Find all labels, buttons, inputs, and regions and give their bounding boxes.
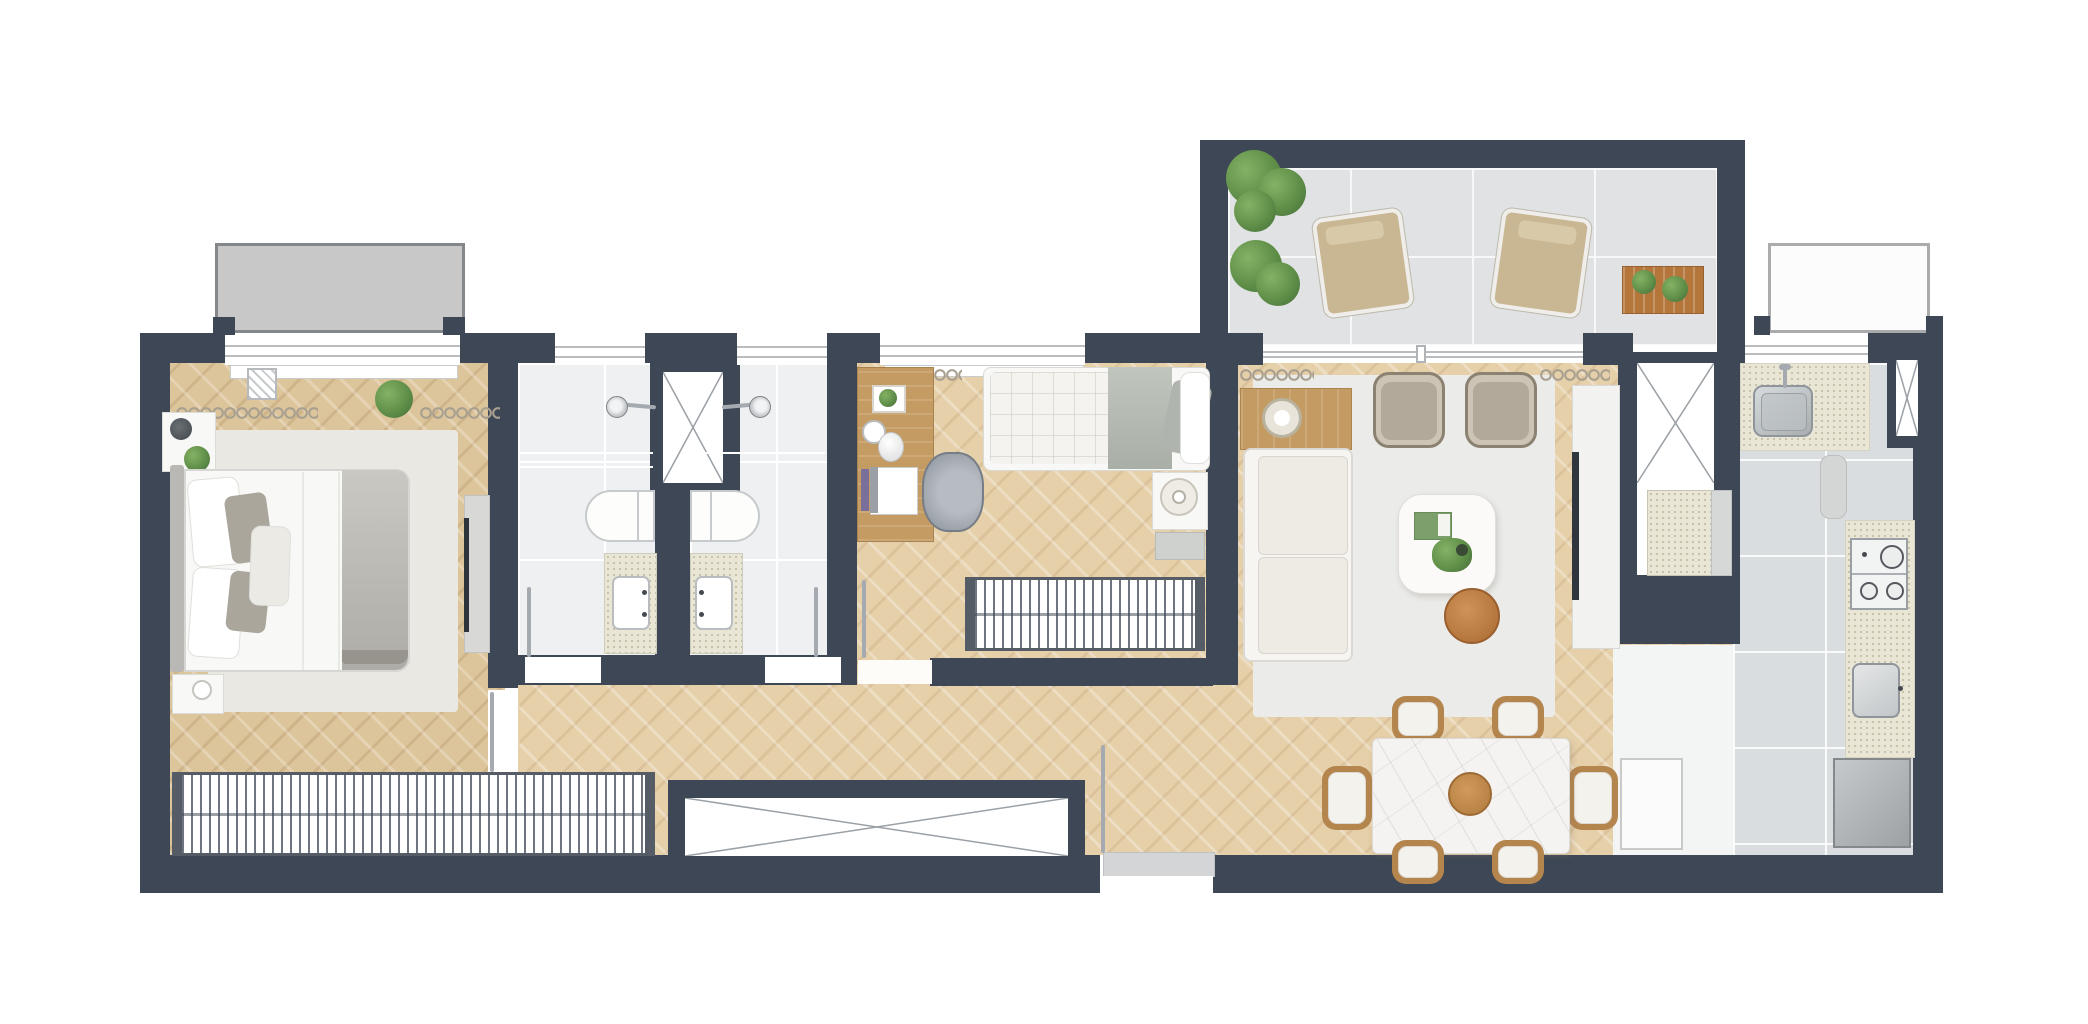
kitchen-cooktop [1850,538,1908,610]
living-curtain-right [1540,366,1610,384]
dining-chair-top-1 [1392,696,1444,742]
bedroom2-tray-cup [1172,490,1186,504]
bath2-tub-divider [710,492,712,540]
master-duvet-fold-1 [302,472,304,670]
living-side-table [1444,588,1500,644]
laundry-sink [1852,663,1900,718]
master-tv [464,518,469,632]
ledge-right-stub-a [1754,316,1770,335]
bedroom2-window [880,335,1085,365]
master-accent-pillow [249,525,292,606]
bath-shaft [663,372,723,483]
living-sofa-cushion-2 [1258,557,1348,654]
kitchen-sink-basin [1761,393,1807,431]
dining-chair-seat [1398,846,1438,878]
wall-top-a [140,333,225,363]
wall-bath2-right [827,363,857,685]
lounge-1-pillow [1325,220,1385,246]
living-console-tray-center [1274,410,1290,426]
bedroom2-pillow-white [1180,372,1210,464]
terrace-planter-2b [1256,262,1300,306]
bedroom2-duvet [990,372,1112,464]
kitchen-window [1745,337,1868,361]
bath2-tile-line [692,452,825,454]
bedroom2-office-chair [922,452,984,532]
bedroom2-blanket [1108,367,1172,469]
dining-chair-bottom-2 [1492,840,1544,884]
bedroom2-desk-lamp [878,432,904,462]
master-table-lamp [170,418,192,440]
ledge-right-stub-b [1926,316,1943,335]
dining-chair-seat [1328,772,1366,824]
bath1-door-leaf [527,587,531,657]
bath2-sink [695,576,733,630]
service-shaft [1637,363,1714,483]
service-panel [1711,490,1732,576]
ledge-left-stub-a [213,317,235,335]
bath1-tile-line-2 [520,466,653,468]
terrace-table-plant-1 [1632,270,1656,294]
living-glass-mullion [1416,345,1426,363]
wall-top-b [460,333,555,363]
dining-chair-seat [1398,702,1438,736]
living-window-pillar-left [1230,333,1263,365]
coffee-table-plant [1432,538,1472,572]
wall-bedroom2-living [1206,363,1238,685]
dining-chair-bottom-1 [1392,840,1444,884]
bedroom2-clothes-rack [965,577,1205,651]
bedroom2-art-plant [879,389,897,407]
kitchen-shaft [1896,360,1918,436]
dining-centerpiece-bowl [1448,772,1492,816]
master-curtain-right [420,404,500,424]
bath1-tile-line [520,452,653,454]
bath2-window [737,337,827,365]
bath2-faucet-dot-1 [699,590,704,595]
bath1-faucet-dot-1 [642,590,647,595]
entry-door-leaf [1101,745,1105,853]
cooktop-burner-2 [1862,552,1867,557]
bath1-door-threshold [525,657,601,683]
cooktop-burner-3 [1860,582,1878,600]
living-tv-unit [1572,385,1620,649]
wall-top-d [827,333,880,363]
wall-terrace-right [1717,140,1745,363]
terrace-lounge-chair-1 [1311,207,1414,319]
dining-chair-left [1322,766,1372,830]
master-cup [192,680,212,700]
dining-chair-seat [1498,702,1538,736]
kitchen-faucet [1783,368,1787,388]
master-blanket-edge [342,650,408,664]
living-armchair-1-cushion [1381,382,1437,440]
terrace-lounge-chair-2 [1489,207,1592,319]
bedroom2-book [861,469,869,511]
bedroom2-stool [1155,532,1205,560]
bath2-bathtub [690,490,760,542]
master-door-leaf [490,692,494,772]
service-equipment [1647,490,1713,576]
wall-top-c [645,333,737,363]
bedroom2-door-threshold [858,660,932,684]
terrace-table-plant-2 [1662,276,1688,302]
bath2-faucet-dot-2 [699,612,704,617]
wall-terrace-top [1200,140,1745,168]
ledge-left-stub-b [443,317,465,335]
balcony-ledge-left [215,243,465,333]
living-sofa-cushion-1 [1258,456,1348,555]
cooktop-burner-1 [1880,545,1904,569]
wall-terrace-left [1200,140,1228,363]
master-ac-unit [247,368,277,400]
hall-cabinet [1620,758,1683,850]
dining-chair-top-2 [1492,696,1544,742]
bath1-shower-head [606,396,628,418]
wall-bedroom2-bottom [930,658,1213,686]
wall-bath-divider [655,497,690,655]
living-armchair-2-cushion [1473,382,1529,440]
bath1-bathtub [585,490,655,542]
coffee-table-book-page [1438,514,1450,536]
kitchen-cutting-board [1820,455,1847,519]
master-headboard [170,465,184,672]
entry-threshold [1103,852,1215,877]
hall-storage-box [685,798,1068,856]
bath1-tub-divider [637,492,639,540]
bath1-window [555,337,645,365]
bath1-sink [612,576,650,630]
bath2-door-threshold [765,657,841,683]
bath2-door-leaf [814,587,818,657]
lounge-2-pillow [1517,220,1577,246]
washing-machine [1833,758,1911,848]
dining-chair-right [1568,766,1618,830]
cooktop-divider [1852,573,1906,575]
terrace-planter-1c [1234,190,1276,232]
living-tv [1572,452,1579,600]
master-plant [375,380,413,418]
wall-bottom-right [1213,855,1943,893]
master-window [225,335,460,365]
bath2-shower-head [749,396,771,418]
cooktop-burner-4 [1886,582,1904,600]
master-blanket [342,470,408,670]
entry-gap [1103,876,1213,893]
living-curtain-left [1240,366,1314,384]
kitchen-faucet-base [1779,364,1791,370]
laundry-faucet [1898,686,1903,691]
bedroom2-door-leaf [862,580,866,658]
floor-plan [0,0,2088,1024]
bath1-faucet-dot-2 [642,612,647,617]
dining-chair-seat [1498,846,1538,878]
master-duvet-fold-2 [338,472,340,670]
dining-chair-seat [1574,772,1612,824]
bedroom2-laptop-screen [870,467,878,513]
coffee-table-pot [1456,544,1468,556]
balcony-ledge-right [1768,243,1930,333]
master-hanger-wardrobe [172,772,655,856]
